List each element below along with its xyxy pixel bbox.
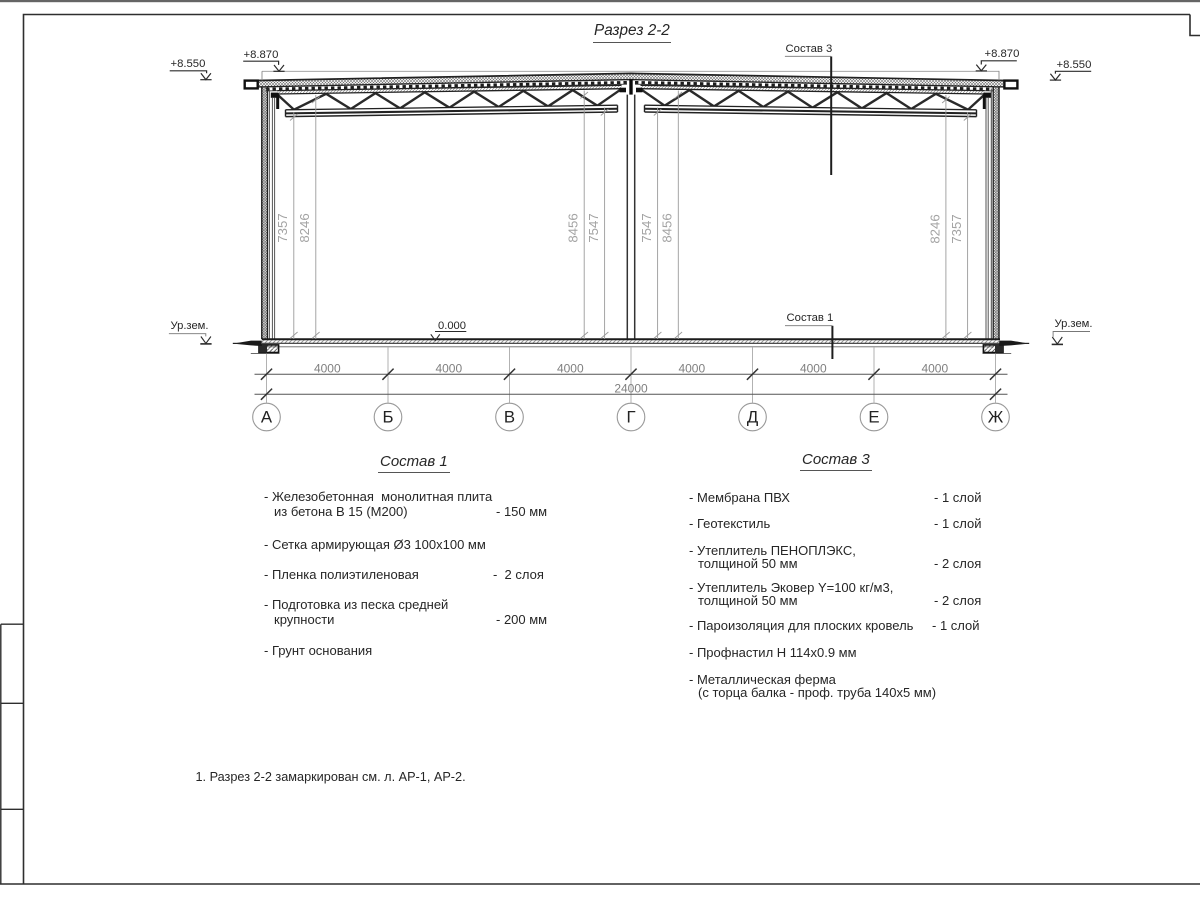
svg-text:4000: 4000 — [435, 361, 462, 375]
svg-text:7357: 7357 — [949, 214, 964, 243]
svg-text:Б: Б — [382, 408, 393, 427]
svg-text:24000: 24000 — [614, 381, 648, 395]
svg-text:В: В — [504, 408, 515, 427]
svg-text:8246: 8246 — [297, 213, 312, 242]
svg-text:4000: 4000 — [800, 361, 827, 375]
svg-text:8246: 8246 — [927, 214, 942, 243]
svg-text:7547: 7547 — [639, 213, 654, 242]
svg-text:8456: 8456 — [566, 213, 581, 242]
svg-text:Ж: Ж — [988, 408, 1004, 427]
svg-text:Д: Д — [747, 408, 759, 427]
svg-text:4000: 4000 — [678, 361, 705, 375]
svg-text:4000: 4000 — [314, 361, 341, 375]
svg-text:7357: 7357 — [275, 213, 290, 242]
svg-text:4000: 4000 — [557, 361, 584, 375]
svg-text:Г: Г — [626, 408, 635, 427]
svg-text:А: А — [261, 408, 273, 427]
svg-text:8456: 8456 — [660, 213, 675, 242]
svg-text:7547: 7547 — [586, 213, 601, 242]
svg-text:4000: 4000 — [921, 361, 948, 375]
svg-text:Е: Е — [868, 408, 879, 427]
